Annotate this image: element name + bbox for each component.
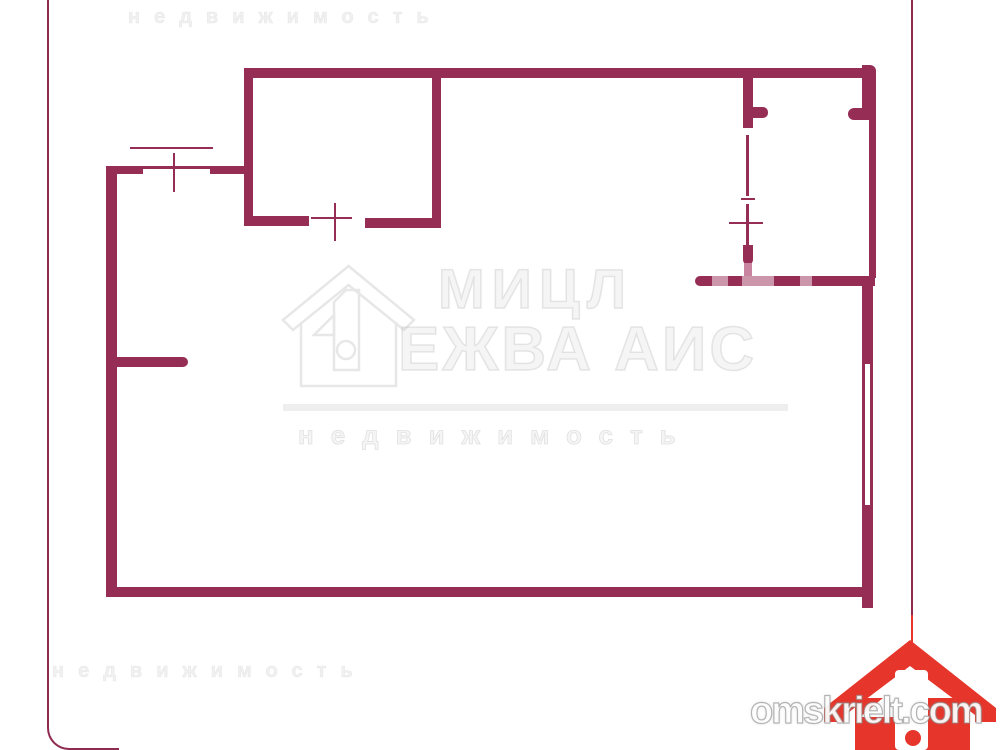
watermark-underline (283, 404, 788, 411)
watermark-line2: ЕЖВА АИС (398, 314, 757, 385)
left-outer-wall (106, 166, 117, 597)
watermark-house-key-icon (276, 260, 421, 392)
room1-door-tick-v (334, 203, 336, 241)
right-window-inner-line (862, 362, 865, 505)
room1-bottom-wall-left (244, 216, 309, 226)
interior-stub-wall (117, 357, 188, 367)
room1-bottom-wall-right (365, 218, 441, 228)
room1-right-wall (432, 68, 441, 228)
right-wall-lower (862, 505, 873, 589)
inner-wall-wash-3 (800, 276, 812, 286)
right-wall-upper (869, 118, 876, 278)
floorplan-page: МИЦЛ ЕЖВА АИС недвижимость недвижимость … (0, 0, 1000, 750)
inner-wall-wash-1 (712, 276, 728, 286)
partition-door-line-a (746, 135, 749, 196)
watermark-line3: недвижимость (298, 420, 693, 451)
watermark-row-top: недвижимость (128, 6, 443, 29)
partition-wall-top (743, 68, 753, 128)
site-watermark-text: omskrielt.com (750, 690, 982, 733)
partition-doorway-stub (753, 107, 768, 118)
partition-wall-faded (744, 263, 752, 277)
partition-door-tick (741, 198, 755, 200)
hall-top-wall-right (210, 166, 244, 174)
top-wall (244, 68, 876, 78)
partition-wall-bottom (743, 245, 753, 264)
partition-door-line-b (746, 204, 749, 245)
room1-left-wall (244, 68, 253, 226)
hall-window-outer-line (130, 147, 213, 149)
hall-window-tick-v (173, 153, 175, 192)
right-wall-mid (862, 276, 873, 364)
right-doorway-stub (848, 108, 875, 120)
page-frame-right-line (911, 0, 913, 618)
partition-cross-tick (729, 222, 763, 224)
hall-window-sill-line (143, 166, 210, 169)
watermark-line1: МИЦЛ (438, 256, 633, 321)
room1-door-tick-h (311, 217, 352, 219)
right-window-outer-line (870, 362, 873, 505)
bottom-wall (106, 587, 873, 597)
right-wall-bottom-stub (862, 597, 873, 608)
inner-wall-wash-2 (742, 276, 774, 286)
